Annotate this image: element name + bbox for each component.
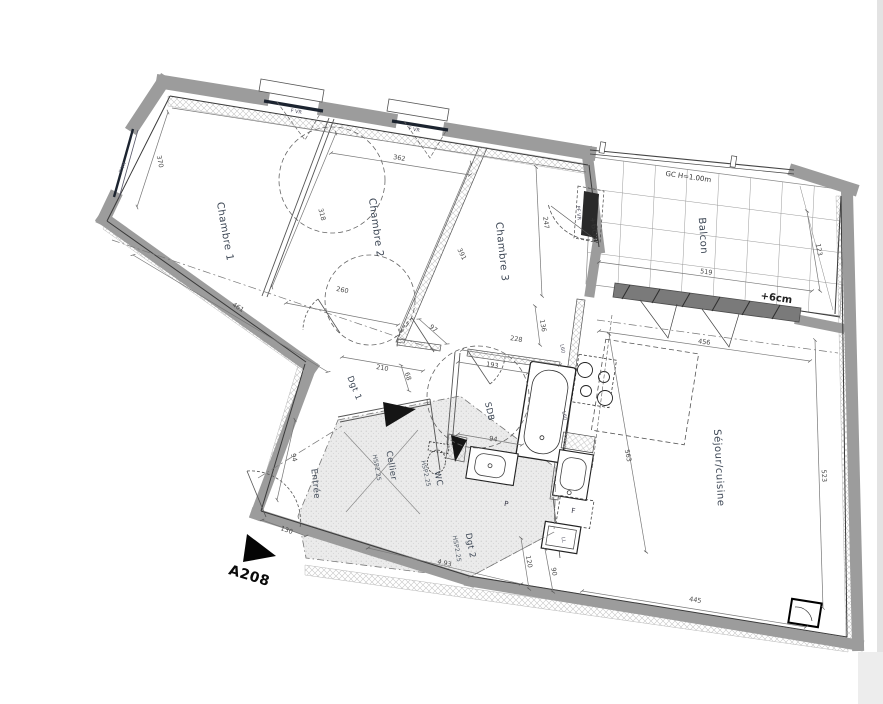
dim-ch3-right: 247 [541,216,551,229]
room-label-dgt1: Dgt 1 [344,375,363,402]
dim-dgt1-a: 97 [428,323,439,334]
dim-sejour-bottom: 445 [689,595,703,605]
dim-ch2-ch3: 391 [455,247,468,262]
note-fridge: F [571,507,576,515]
room-label-chambre2: Chambre 2 [366,197,385,258]
room-label-sejour: Séjour/cuisine [711,429,727,507]
entrance-arrow-icon [243,534,276,562]
dim-sejour-right: 523 [820,469,829,482]
page-corner [858,652,883,704]
note-pf-vr: PF VR [574,205,581,220]
corner-column [788,599,821,627]
note-f-vr-1: F VR [290,108,303,116]
dim-dgt2-b: 90 [549,567,558,577]
dim-dgt1-c: 68 [403,371,413,381]
unit-marker: A208 [227,534,276,590]
floor-plan-drawing: Chambre 1 Chambre 2 Chambre 3 Balcon Séj… [0,0,883,704]
dim-ch3-bottom: 228 [510,334,524,344]
washbasin [466,446,518,485]
room-label-chambre3: Chambre 3 [493,222,510,282]
dim-ch2-top: 362 [393,153,407,163]
dim-cuisine: 563 [623,449,633,463]
note-l60-1: L60 [558,344,565,354]
cooktop [571,354,616,407]
turning-circles [279,127,529,448]
unit-label: A208 [227,562,272,590]
dim-ch2-bottom: 260 [336,285,350,295]
note-f-vr-3: F VR [118,161,128,174]
floor-plan-page: Chambre 1 Chambre 2 Chambre 3 Balcon Séj… [0,0,883,704]
dim-entree-wall: 94 [289,453,299,463]
dim-ch3-low: 136 [538,319,548,333]
dim-balcon-top: 519 [700,267,713,277]
dim-sdb-bottom: 94 [489,434,498,443]
dim-ch1-left: 370 [155,155,165,169]
dim-sejour-top: 456 [698,337,711,347]
page-edge [877,0,883,704]
note-f-vr-2: F VR [408,126,421,134]
dim-dgt1-b: 210 [376,363,390,373]
dim-ch1-ch2: 318 [316,207,327,221]
dim-sdb-top: 193 [486,360,500,370]
room-label-chambre1: Chambre 1 [214,201,235,262]
